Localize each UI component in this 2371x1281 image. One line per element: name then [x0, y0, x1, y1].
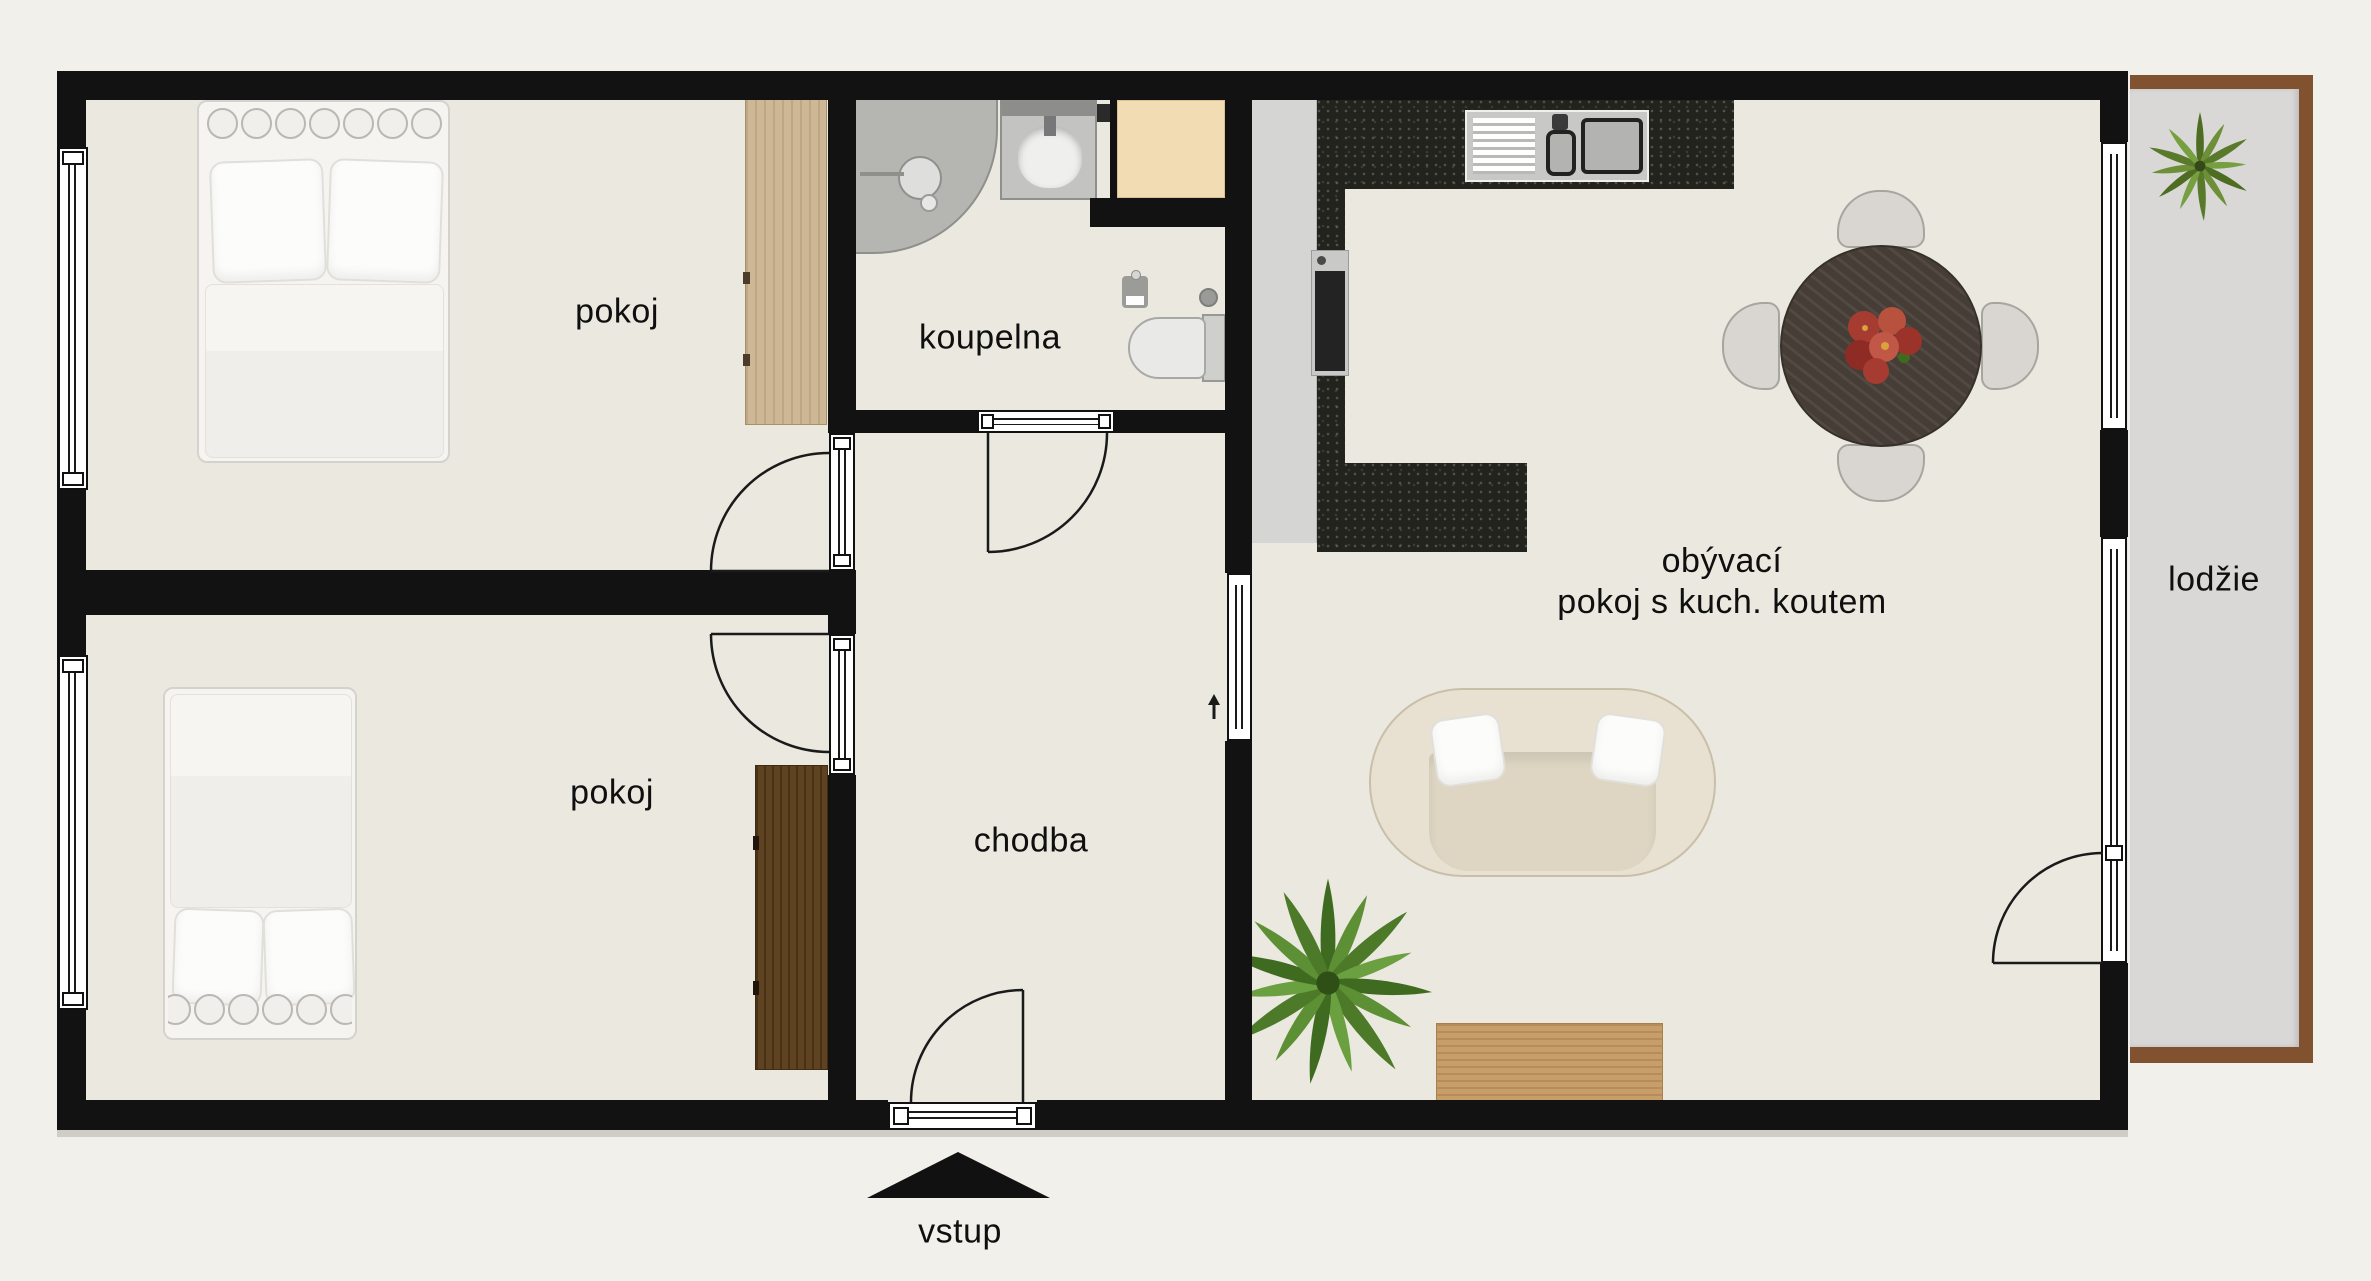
floorplan-canvas: pokoj koupelna pokoj chodba obývací poko…	[0, 0, 2371, 1281]
room-label-living-line2: pokoj s kuch. koutem	[1557, 582, 1886, 623]
room-label-bedroom-top: pokoj	[575, 293, 659, 332]
door-swings-overlay	[0, 0, 2371, 1281]
door-swing	[711, 433, 2103, 1102]
room-label-living: obývací pokoj s kuch. koutem	[1557, 541, 1886, 623]
room-label-bedroom-bottom: pokoj	[570, 774, 654, 813]
room-label-hallway: chodba	[974, 822, 1089, 861]
room-label-loggia: lodžie	[2168, 561, 2260, 600]
room-label-living-line1: obývací	[1557, 541, 1886, 582]
entrance-arrow-icon	[867, 1152, 1050, 1198]
room-label-bathroom: koupelna	[919, 319, 1061, 358]
entrance-label: vstup	[918, 1213, 1002, 1252]
direction-arrow-icon	[1208, 694, 1220, 719]
